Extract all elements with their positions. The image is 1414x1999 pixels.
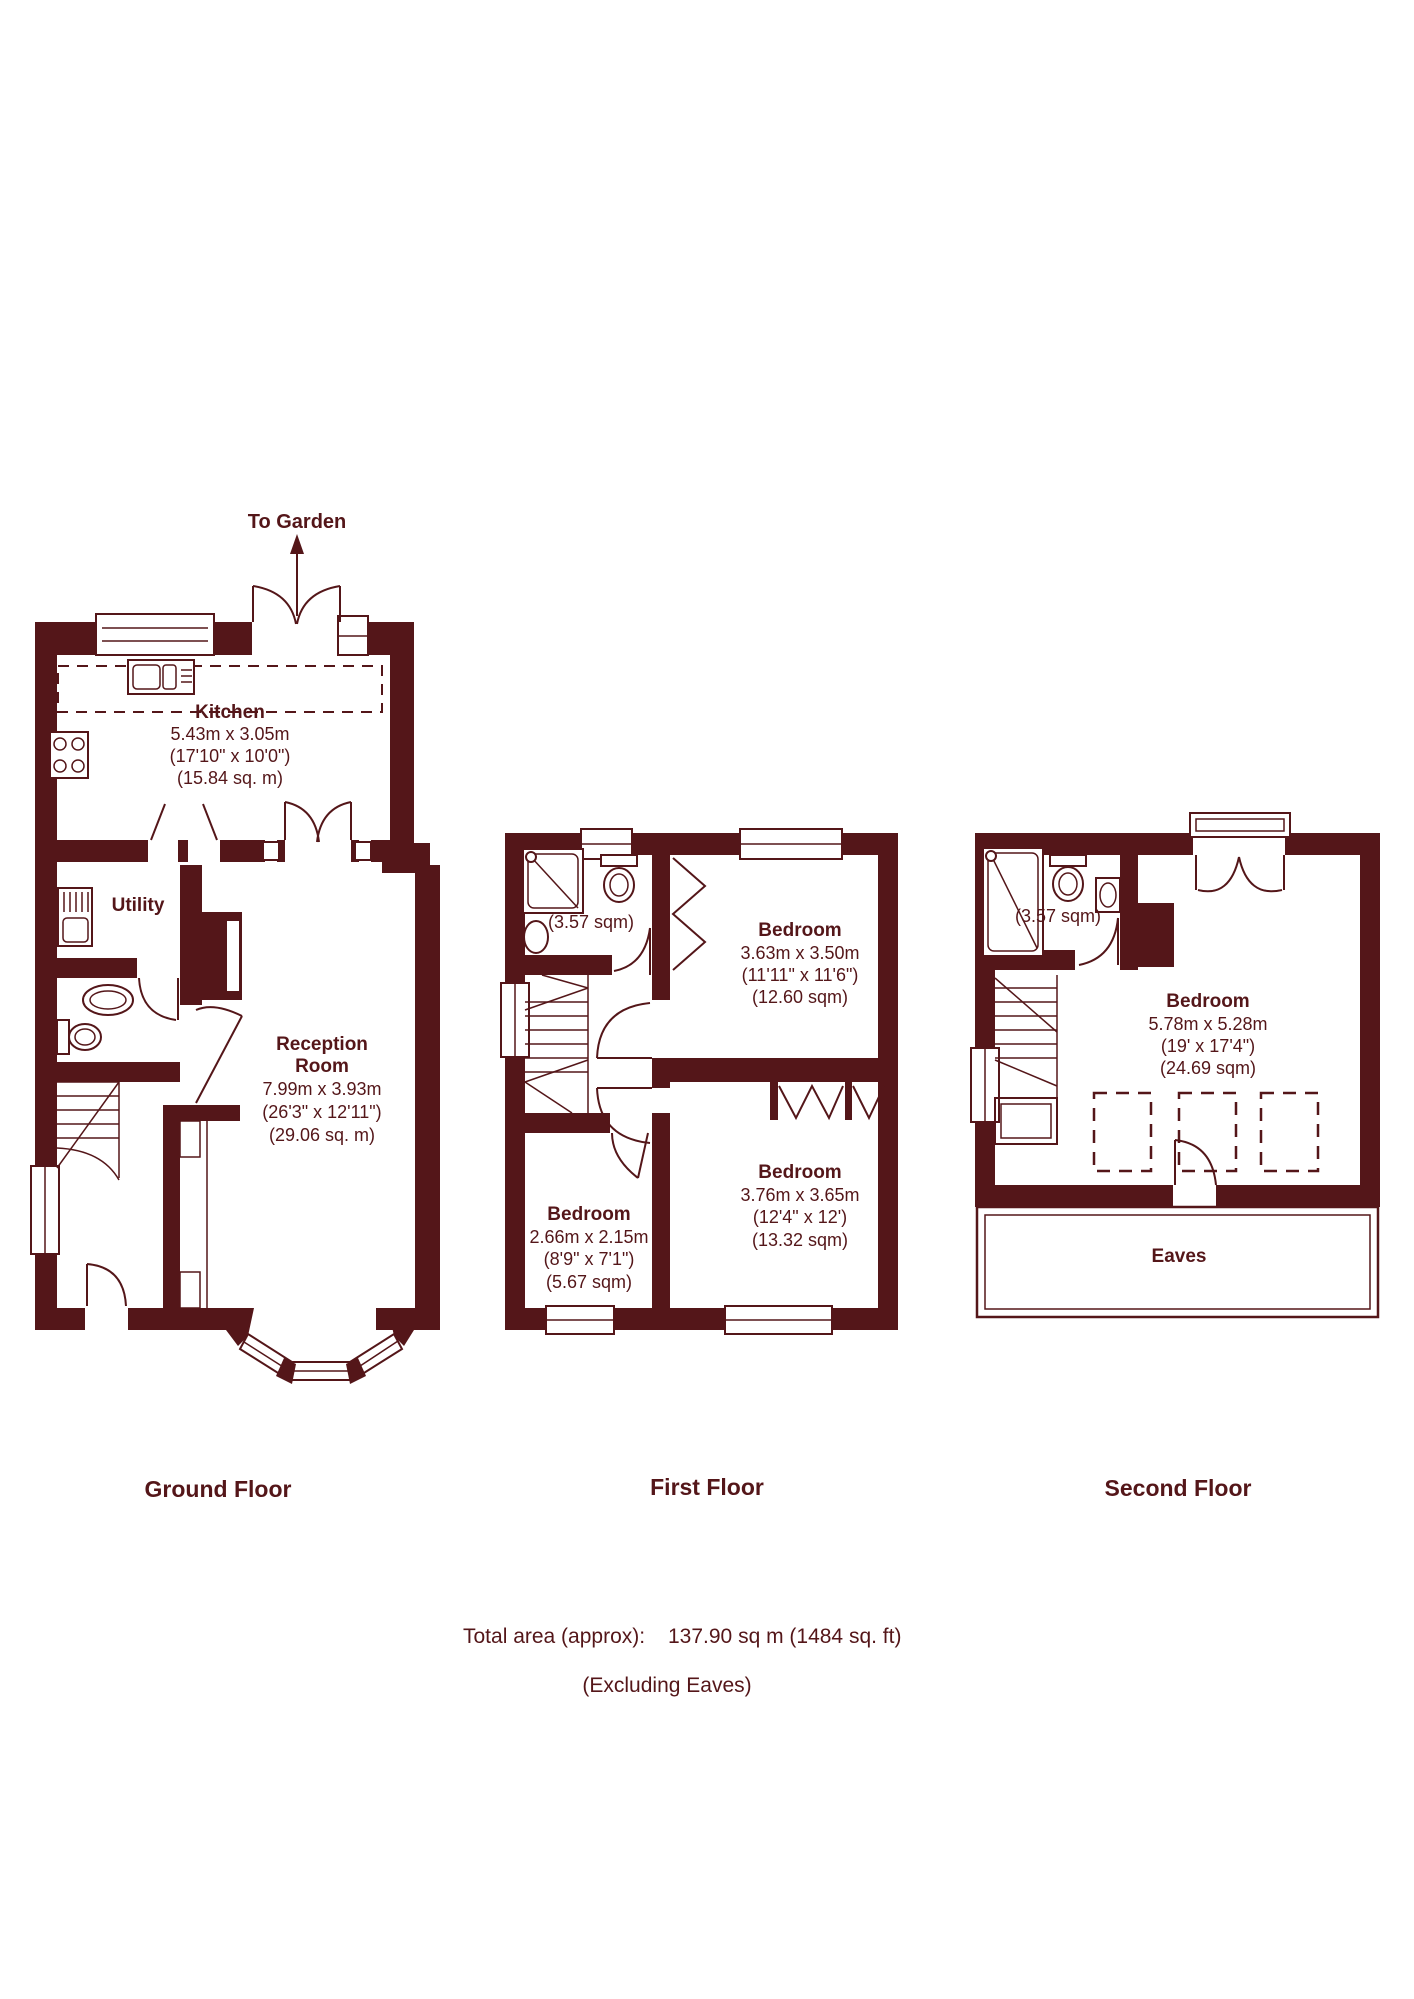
ground-stairs-icon [57, 1082, 119, 1180]
hall-window [31, 1166, 59, 1254]
shower-room-area: (3.57 sqm) [1015, 906, 1101, 926]
bedroom-front-door-arc [597, 1003, 652, 1058]
bedroom-small-door-arc [612, 1133, 648, 1178]
toilet-icon [1050, 855, 1086, 901]
bedroom-small-imperial: (8'9" x 7'1") [544, 1249, 635, 1269]
eaves-storage-outlines [1094, 1093, 1318, 1171]
eaves-label: Eaves [1152, 1246, 1207, 1267]
bathroom-area: (3.57 sqm) [548, 912, 634, 932]
bedroom-rear-area: (13.32 sqm) [752, 1230, 848, 1250]
hob-icon [50, 732, 88, 778]
kitchen-imperial: (17'10" x 10'0") [170, 746, 291, 766]
eaves-door-arc [1175, 1140, 1216, 1185]
basin-icon [83, 985, 133, 1015]
kitchen-window [96, 614, 214, 655]
wardrobe-bifold-doors [673, 858, 705, 970]
reception-imperial: (26'3" x 12'11") [262, 1102, 381, 1122]
sidelight-left [263, 842, 279, 860]
bedroom-small-area: (5.67 sqm) [546, 1272, 632, 1292]
bedroom-small-label: Bedroom [547, 1204, 630, 1225]
second-floor-plan: (3.57 sqm) Bedroom 5.78m x 5.28m (19' x … [971, 813, 1380, 1501]
bedroom-front-label: Bedroom [758, 920, 841, 941]
shower-room-fixtures [983, 848, 1120, 956]
excluding-eaves-note: (Excluding Eaves) [582, 1674, 751, 1697]
reception-door-arc [196, 1007, 242, 1103]
alcove-recess [180, 1121, 207, 1308]
toilet-icon [601, 855, 637, 902]
wc-door-arc [139, 978, 178, 1020]
bedroom-front-imperial: (11'11" x 11'6") [742, 965, 859, 985]
dormer-window [1190, 813, 1290, 891]
hall-door-leaf [203, 804, 217, 840]
kitchen-reception-french-doors [285, 802, 351, 842]
first-stairs-icon [525, 975, 588, 1113]
toilet-icon [57, 1020, 101, 1054]
shower-icon [983, 848, 1043, 956]
garden-arrow-icon [290, 534, 304, 616]
utility-sink-icon [58, 888, 92, 946]
ground-floor-title: Ground Floor [145, 1476, 292, 1502]
fireplace-recess [226, 920, 240, 992]
summary-block: Total area (approx): 137.90 sq m (1484 s… [463, 1625, 901, 1697]
reception-label-line1: Reception [276, 1034, 368, 1055]
closet-bifold-doors [779, 1086, 843, 1118]
kitchen-metric: 5.43m x 3.05m [170, 724, 289, 744]
sink-icon [128, 660, 194, 694]
second-stairs-icon [995, 975, 1057, 1144]
total-area-label: Total area (approx): [463, 1625, 645, 1648]
first-doors [597, 858, 884, 1178]
sidelight-right [355, 842, 371, 860]
front-door-arc [87, 1264, 126, 1306]
bedroom-front-area: (12.60 sqm) [752, 987, 848, 1007]
reception-area: (29.06 sq. m) [269, 1125, 375, 1145]
utility-door-leaf [151, 804, 165, 840]
total-area-value: 137.90 sq m (1484 sq. ft) [668, 1625, 901, 1648]
bathroom-fixtures [523, 849, 637, 953]
bathroom-door-arc [614, 928, 650, 975]
second-floor-title: Second Floor [1105, 1475, 1252, 1501]
kitchen-label: Kitchen [195, 702, 265, 723]
floorplan-canvas: To Garden [0, 0, 1414, 1999]
wc-fixtures [57, 985, 133, 1054]
to-garden-label: To Garden [248, 511, 347, 533]
first-floor-plan: (3.57 sqm) Bedroom 3.63m x 3.50m (11'11"… [501, 829, 898, 1500]
bedroom-rear-label: Bedroom [758, 1162, 841, 1183]
kitchen-area: (15.84 sq. m) [177, 768, 283, 788]
chimney-breast [202, 912, 242, 1000]
reception-metric: 7.99m x 3.93m [262, 1079, 381, 1099]
reception-label-line2: Room [295, 1056, 349, 1077]
bedroom-top-label: Bedroom [1166, 991, 1249, 1012]
shower-icon [523, 849, 583, 913]
bedroom-rear-imperial: (12'4" x 12') [753, 1207, 847, 1227]
to-garden-annotation: To Garden [248, 511, 347, 616]
bedroom-small-metric: 2.66m x 2.15m [529, 1227, 648, 1247]
utility-label: Utility [112, 895, 165, 916]
bedroom-top-imperial: (19' x 17'4") [1161, 1036, 1255, 1056]
ground-floor-plan: To Garden [31, 511, 440, 1502]
basin-icon [524, 921, 548, 953]
floorplan-page: To Garden [0, 0, 1414, 1999]
bedroom-rear-metric: 3.76m x 3.65m [740, 1185, 859, 1205]
bedroom-top-metric: 5.78m x 5.28m [1148, 1014, 1267, 1034]
first-floor-title: First Floor [650, 1474, 764, 1500]
bedroom-front-metric: 3.63m x 3.50m [740, 943, 859, 963]
bedroom-top-area: (24.69 sqm) [1160, 1058, 1256, 1078]
